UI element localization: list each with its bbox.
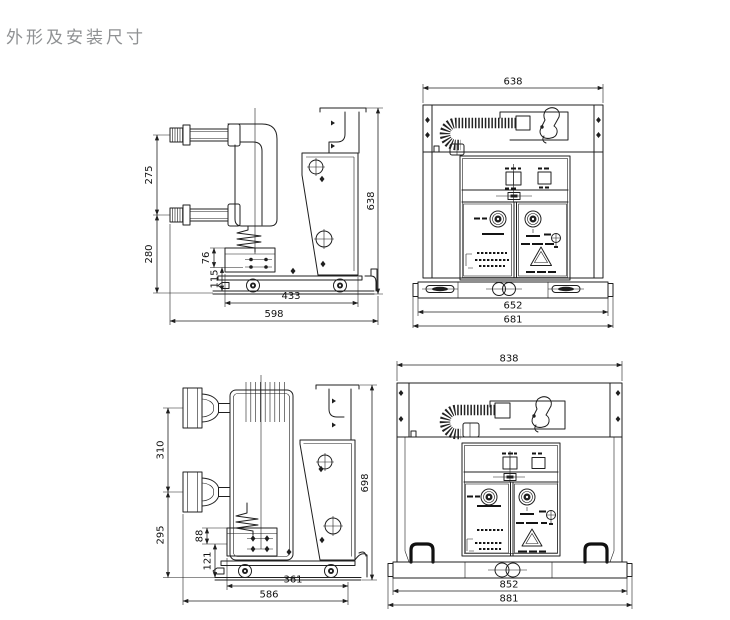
dim-310: 310 bbox=[156, 408, 184, 492]
manual-charge-knob bbox=[544, 234, 561, 249]
dim-652: 652 bbox=[418, 298, 608, 316]
dim-698-label: 698 bbox=[360, 473, 371, 492]
nameplate bbox=[466, 234, 509, 268]
close-pushbutton bbox=[525, 211, 541, 236]
dim-361-label: 361 bbox=[283, 575, 302, 586]
indicator-window-right bbox=[538, 169, 551, 188]
dim-115: 115 bbox=[210, 268, 223, 292]
indicator-window-right bbox=[532, 454, 545, 469]
dim-881-label: 881 bbox=[499, 594, 518, 605]
interlock-latch bbox=[490, 397, 565, 432]
dim-275-label: 275 bbox=[144, 165, 155, 184]
support-frame bbox=[291, 153, 359, 275]
upper-bushing bbox=[183, 388, 230, 428]
mechanism-box bbox=[227, 528, 277, 556]
mechanism-box bbox=[225, 248, 275, 272]
dim-433-label: 433 bbox=[281, 291, 300, 302]
dim-295-label: 295 bbox=[156, 525, 167, 544]
cabinet-outline bbox=[423, 105, 603, 278]
indicator-window-left bbox=[502, 454, 517, 470]
dim-598-label: 598 bbox=[264, 309, 283, 320]
dim-76: 76 bbox=[201, 248, 243, 268]
warning-triangle bbox=[518, 529, 546, 552]
dim-852: 852 bbox=[393, 578, 627, 595]
dim-361: 361 bbox=[227, 558, 348, 590]
lower-bushing bbox=[183, 472, 230, 512]
dim-638-front: 638 bbox=[423, 77, 603, 104]
dim-310-label: 310 bbox=[156, 440, 167, 459]
dim-638-side: 638 bbox=[366, 108, 383, 294]
warning-triangle bbox=[526, 247, 556, 272]
support-frame bbox=[287, 440, 356, 560]
pole-housing bbox=[230, 375, 293, 560]
dim-652-label: 652 bbox=[503, 301, 522, 312]
pole-housing bbox=[228, 108, 277, 254]
lifting-bracket bbox=[320, 108, 366, 153]
dim-76-label: 76 bbox=[201, 252, 212, 265]
nameplate bbox=[467, 506, 503, 551]
dim-280-label: 280 bbox=[144, 244, 155, 263]
lower-bushing bbox=[170, 204, 240, 226]
page-title: 外形及安装尺寸 bbox=[6, 23, 146, 48]
interlock-latch bbox=[500, 108, 568, 143]
flexible-conduit bbox=[445, 116, 530, 155]
charging-handle-slot bbox=[493, 474, 525, 481]
base-rail bbox=[388, 562, 632, 578]
drawing-front-view-bottom: 838 852 881 bbox=[385, 353, 685, 615]
page: 外形及安装尺寸 bbox=[0, 0, 730, 620]
lifting-bracket bbox=[316, 385, 359, 440]
open-pushbutton bbox=[467, 489, 497, 505]
close-pushbutton bbox=[519, 489, 535, 514]
spring bbox=[236, 503, 258, 535]
dim-115-label: 115 bbox=[210, 269, 221, 288]
base-rail bbox=[413, 282, 613, 298]
dim-275: 275 bbox=[144, 135, 170, 215]
dim-838-label: 838 bbox=[499, 354, 518, 365]
drawing-side-view-top: 275 280 76 115 638 433 598 bbox=[125, 78, 390, 330]
dim-121: 121 bbox=[203, 544, 216, 578]
dim-838: 838 bbox=[397, 354, 622, 382]
front-panel bbox=[460, 156, 570, 280]
dim-88: 88 bbox=[195, 528, 228, 544]
dim-681-label: 681 bbox=[503, 315, 522, 326]
dim-698: 698 bbox=[360, 385, 377, 580]
charging-handle-slot bbox=[496, 193, 532, 200]
dim-88-label: 88 bbox=[195, 530, 206, 543]
indicator-window-left bbox=[505, 169, 521, 189]
flexible-conduit bbox=[445, 403, 510, 437]
open-pushbutton bbox=[474, 211, 506, 227]
dim-638-side-label: 638 bbox=[366, 191, 377, 210]
corner-handle-left bbox=[411, 544, 433, 562]
corner-handle-right bbox=[585, 544, 607, 562]
drawing-front-view-top: 638 652 681 bbox=[398, 76, 676, 328]
dim-852-label: 852 bbox=[499, 580, 518, 591]
upper-bushing bbox=[170, 124, 240, 146]
dim-638-front-label: 638 bbox=[503, 77, 522, 88]
dim-121-label: 121 bbox=[203, 551, 214, 570]
dim-586-label: 586 bbox=[259, 590, 278, 601]
front-panel bbox=[462, 443, 560, 556]
drawing-side-view-bottom: 310 295 88 121 361 586 698 bbox=[103, 363, 388, 611]
